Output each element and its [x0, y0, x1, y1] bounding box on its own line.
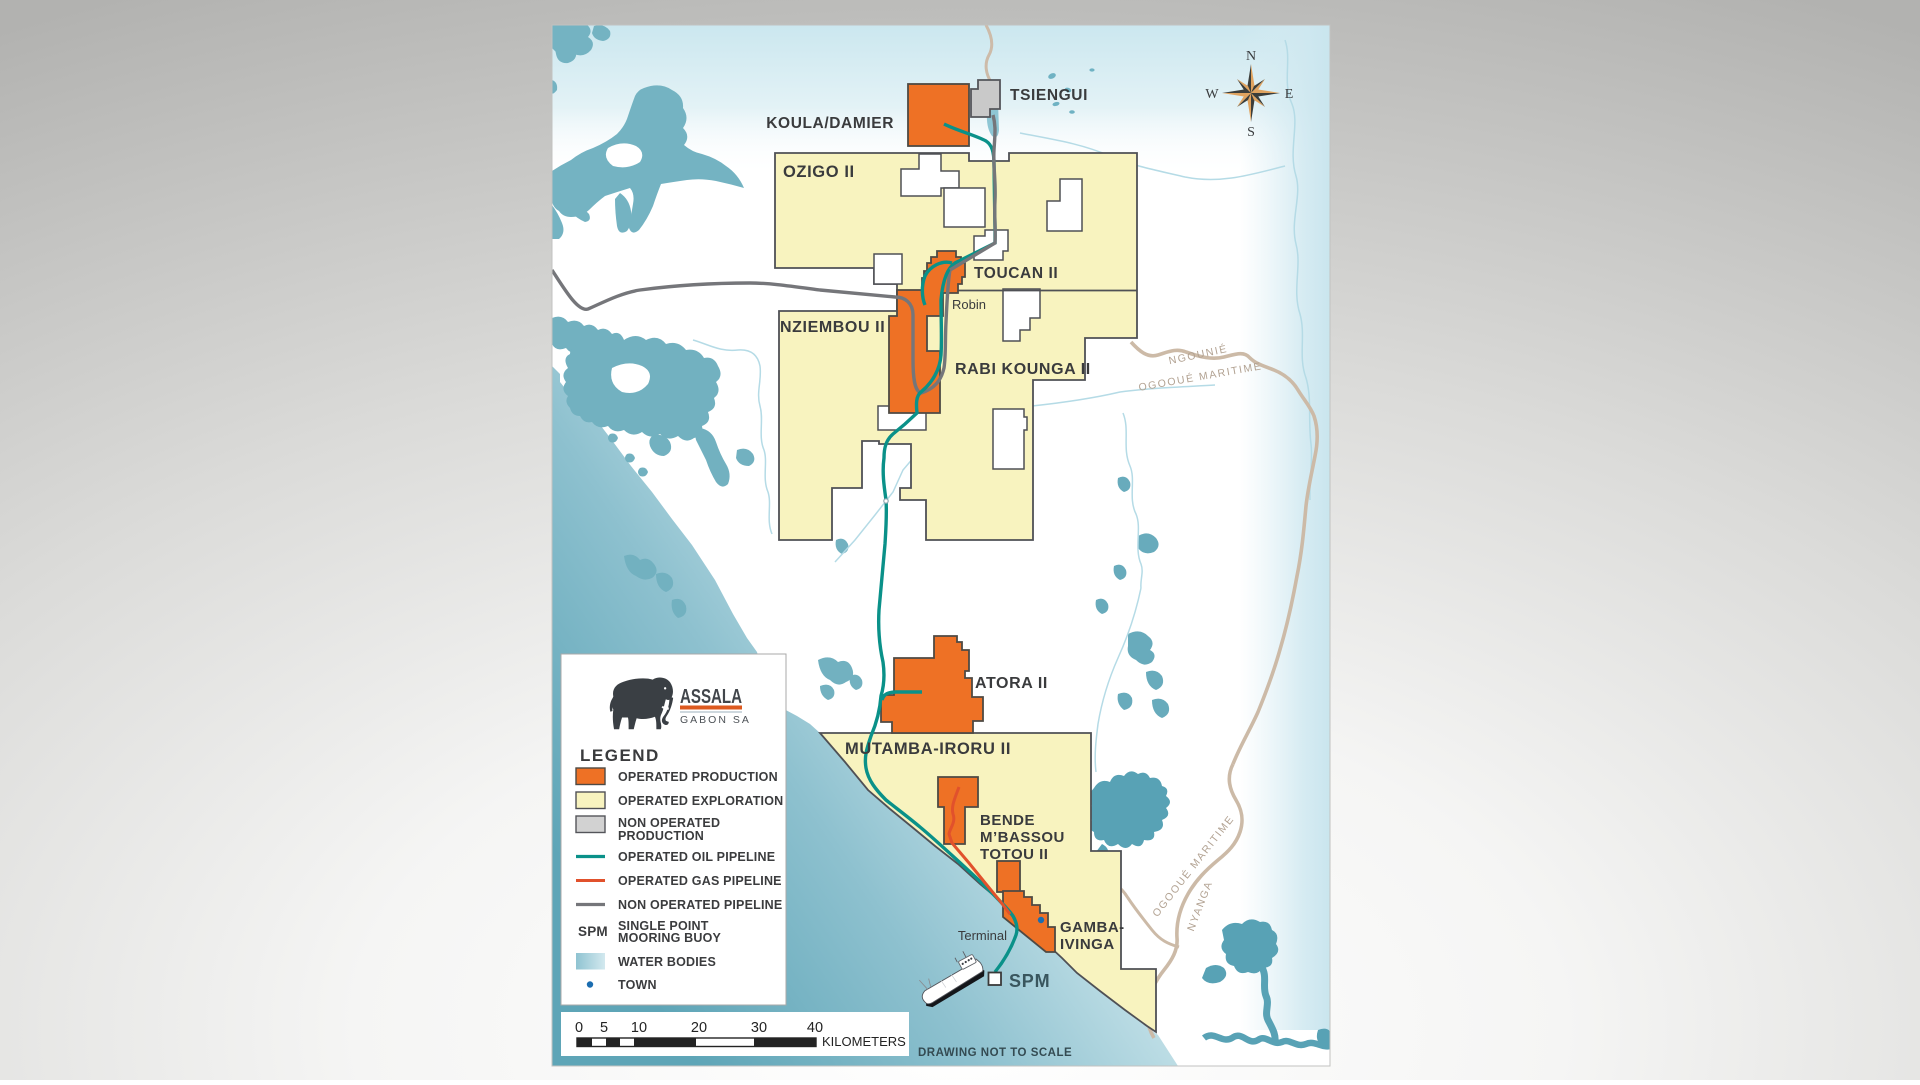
- svg-text:E: E: [1285, 87, 1294, 102]
- svg-text:MUTAMBA-IRORU II: MUTAMBA-IRORU II: [845, 740, 1011, 758]
- svg-text:BENDE: BENDE: [980, 812, 1035, 829]
- svg-text:OPERATED OIL PIPELINE: OPERATED OIL PIPELINE: [618, 850, 775, 864]
- svg-text:OPERATED GAS PIPELINE: OPERATED GAS PIPELINE: [618, 874, 782, 888]
- svg-text:PRODUCTION: PRODUCTION: [618, 829, 704, 843]
- svg-text:30: 30: [751, 1020, 767, 1036]
- svg-text:5: 5: [600, 1020, 608, 1036]
- svg-text:OPERATED PRODUCTION: OPERATED PRODUCTION: [618, 770, 778, 784]
- svg-text:MOORING BUOY: MOORING BUOY: [618, 931, 722, 945]
- svg-text:SPM: SPM: [1009, 971, 1050, 991]
- svg-text:Terminal: Terminal: [958, 928, 1007, 943]
- svg-text:20: 20: [691, 1020, 707, 1036]
- svg-text:OPERATED EXPLORATION: OPERATED EXPLORATION: [618, 794, 783, 808]
- svg-text:Robin: Robin: [952, 297, 986, 312]
- svg-text:TOWN: TOWN: [618, 978, 657, 992]
- svg-text:TOUCAN II: TOUCAN II: [974, 265, 1058, 282]
- svg-text:ASSALA: ASSALA: [680, 686, 742, 708]
- svg-text:DRAWING NOT TO SCALE: DRAWING NOT TO SCALE: [918, 1047, 1072, 1059]
- svg-text:TOTOU II: TOTOU II: [980, 846, 1048, 863]
- svg-text:ATORA II: ATORA II: [975, 675, 1048, 692]
- svg-text:S: S: [1247, 125, 1255, 140]
- svg-text:N: N: [1246, 49, 1256, 64]
- svg-text:WATER BODIES: WATER BODIES: [618, 955, 716, 969]
- svg-text:NZIEMBOU II: NZIEMBOU II: [780, 319, 885, 336]
- svg-text:10: 10: [631, 1020, 647, 1036]
- svg-text:IVINGA: IVINGA: [1060, 936, 1115, 953]
- svg-text:GABON SA: GABON SA: [680, 714, 751, 726]
- svg-text:SPM: SPM: [578, 924, 608, 939]
- svg-text:40: 40: [807, 1020, 823, 1036]
- svg-text:NON OPERATED PIPELINE: NON OPERATED PIPELINE: [618, 898, 782, 912]
- svg-text:OZIGO II: OZIGO II: [783, 163, 855, 181]
- svg-text:GAMBA-: GAMBA-: [1060, 919, 1125, 936]
- svg-text:KILOMETERS: KILOMETERS: [822, 1034, 906, 1049]
- svg-text:RABI KOUNGA II: RABI KOUNGA II: [955, 361, 1091, 378]
- svg-text:0: 0: [575, 1020, 583, 1036]
- svg-text:TSIENGUI: TSIENGUI: [1010, 87, 1088, 104]
- svg-text:LEGEND: LEGEND: [580, 746, 660, 765]
- svg-text:KOULA/DAMIER: KOULA/DAMIER: [766, 115, 894, 132]
- svg-text:W: W: [1205, 87, 1219, 102]
- svg-text:NON OPERATED: NON OPERATED: [618, 816, 720, 830]
- svg-text:M’BASSOU: M’BASSOU: [980, 829, 1065, 846]
